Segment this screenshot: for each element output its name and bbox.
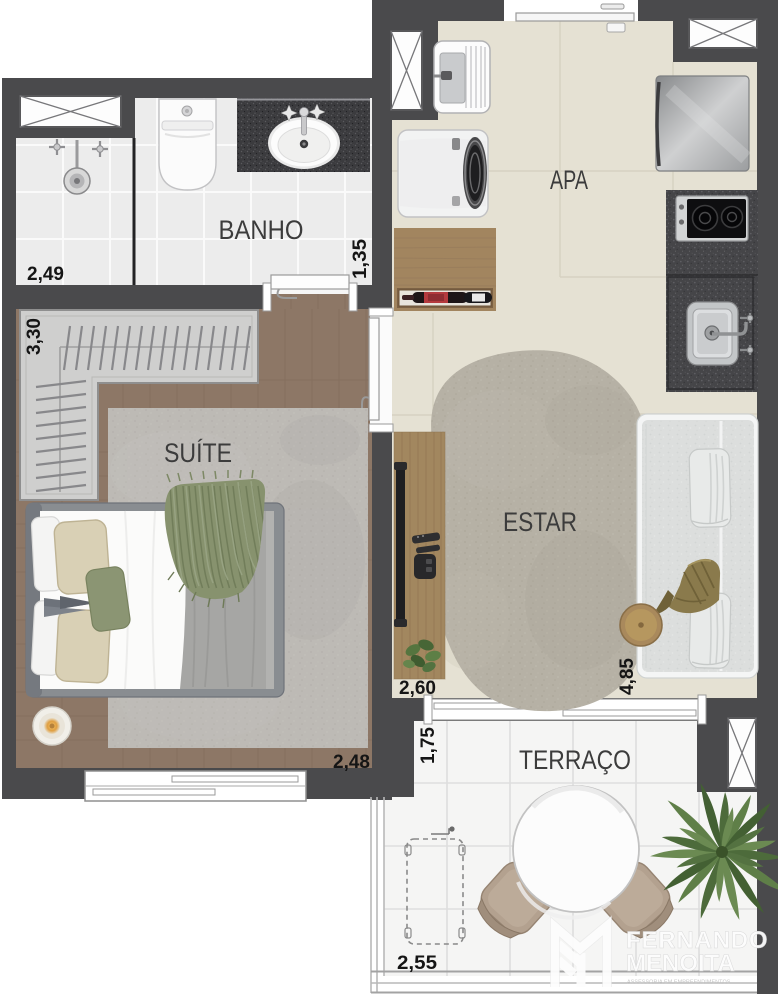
svg-text:ASSESSORIA EM EMPREENDIMENTOS: ASSESSORIA EM EMPREENDIMENTOS [627,980,731,986]
svg-text:1,75: 1,75 [418,727,439,764]
svg-text:ESTAR: ESTAR [503,507,577,537]
svg-text:2,49: 2,49 [27,264,64,285]
svg-text:4,85: 4,85 [617,658,638,695]
svg-text:1,35: 1,35 [350,239,371,279]
svg-text:SUÍTE: SUÍTE [164,438,232,468]
svg-text:TERRAÇO: TERRAÇO [519,745,631,775]
svg-text:BANHO: BANHO [219,215,304,245]
svg-text:APA: APA [550,165,588,195]
svg-text:MENOITA: MENOITA [626,950,735,977]
svg-text:2,48: 2,48 [333,752,370,773]
svg-text:3,30: 3,30 [24,318,45,355]
svg-text:2,60: 2,60 [399,678,436,699]
svg-text:2,55: 2,55 [397,953,437,974]
